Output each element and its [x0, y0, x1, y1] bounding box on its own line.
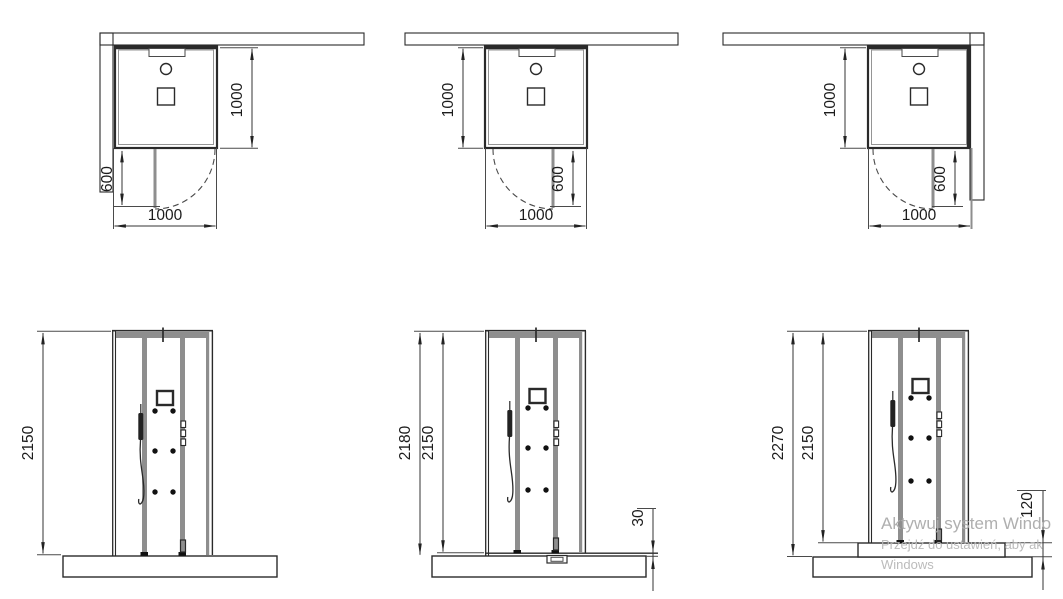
control-panel	[157, 391, 173, 405]
dim-overall-2270: 2270	[770, 331, 867, 556]
body-jets	[908, 395, 931, 483]
dim-base-30: 30	[630, 508, 656, 591]
shower-cabin-drawing: 600 1000 1000 600 1000	[0, 0, 1063, 599]
dim-cabin-2150: 2150	[800, 333, 858, 543]
post-foot	[897, 540, 905, 544]
dim-label-depth: 1000	[440, 82, 457, 117]
dim-label-base: 30	[630, 509, 647, 527]
right-frame-post	[206, 332, 209, 555]
mixer-knobs	[937, 412, 942, 437]
circle-fixture	[531, 64, 542, 75]
dim-door-600: 600	[932, 151, 963, 207]
door-swing-arc	[873, 149, 933, 209]
front-view-on-floor: 2150	[20, 328, 277, 578]
dim-label-overall: 2180	[397, 425, 414, 460]
front-view-on-tray: 2180 2150 30	[397, 328, 658, 592]
frame-post-right	[936, 338, 941, 543]
floor-hatch	[63, 556, 277, 577]
top-panel	[902, 49, 938, 57]
hand-shower	[890, 391, 896, 492]
body-jets	[525, 405, 548, 492]
drain-fitting	[547, 556, 567, 564]
body-jets	[152, 408, 175, 494]
circle-fixture	[161, 64, 172, 75]
control-panel	[530, 389, 546, 403]
dim-overall-2180: 2180	[397, 331, 484, 555]
hand-shower	[507, 401, 513, 502]
square-fixture	[158, 88, 175, 105]
door-swing-arc	[493, 149, 553, 209]
floor-hatch	[813, 557, 1032, 577]
dim-height-2150: 2150	[20, 331, 111, 555]
dim-width-1000: 1000	[487, 207, 586, 226]
dim-width-1000: 1000	[115, 207, 216, 226]
dim-door-600: 600	[550, 151, 581, 207]
dim-label-depth: 1000	[229, 82, 246, 117]
top-panel	[149, 49, 185, 57]
dim-label-width: 1000	[902, 207, 937, 224]
dim-label-width: 1000	[519, 207, 554, 224]
dim-depth-1000: 1000	[220, 48, 258, 149]
dim-cabin-2150: 2150	[420, 333, 484, 553]
right-frame-post	[579, 332, 582, 553]
top-view-corner-right: 600 1000 1000	[723, 33, 984, 229]
dim-label-door: 600	[99, 166, 116, 192]
wall-hatch-top	[405, 33, 678, 45]
frame-post-left	[898, 338, 903, 543]
dim-label-door: 600	[932, 166, 949, 192]
floor-hatch	[432, 556, 646, 577]
technical-drawing-canvas: 600 1000 1000 600 1000	[0, 0, 1063, 599]
dim-label-base: 120	[1019, 492, 1036, 518]
frame-post-left	[142, 338, 147, 555]
dim-width-1000: 1000	[870, 207, 971, 226]
dim-label-overall: 2270	[770, 425, 787, 460]
mixer-knobs	[554, 421, 559, 446]
dim-label-cabin: 2150	[800, 425, 817, 460]
top-panel	[519, 49, 555, 57]
dim-label-door: 600	[550, 166, 567, 192]
post-foot	[141, 552, 149, 556]
square-fixture	[528, 88, 545, 105]
wall-hatch-top	[100, 33, 364, 45]
circle-fixture	[914, 64, 925, 75]
door-swing-arc	[155, 149, 215, 209]
dim-door-600: 600	[99, 151, 160, 207]
frame-post-right	[180, 338, 185, 555]
mixer-knobs	[181, 421, 186, 446]
wall-hatch-top	[723, 33, 984, 45]
top-view-corner-left: 600 1000 1000	[99, 33, 364, 229]
right-frame-post	[962, 332, 965, 543]
square-fixture	[911, 88, 928, 105]
post-foot	[514, 550, 522, 554]
control-panel	[913, 379, 929, 393]
dim-label-width: 1000	[148, 207, 183, 224]
dim-label-height: 2150	[20, 425, 37, 460]
dim-label-cabin: 2150	[420, 425, 437, 460]
top-view-back-wall: 600 1000 1000	[405, 33, 678, 229]
dim-label-depth: 1000	[822, 82, 839, 117]
frame-post-left	[515, 338, 520, 553]
dim-depth-1000: 1000	[440, 48, 483, 149]
dim-depth-1000: 1000	[822, 48, 866, 149]
front-view-on-plinth: 2270 2150 120	[770, 328, 1052, 591]
plinth	[858, 543, 1005, 557]
